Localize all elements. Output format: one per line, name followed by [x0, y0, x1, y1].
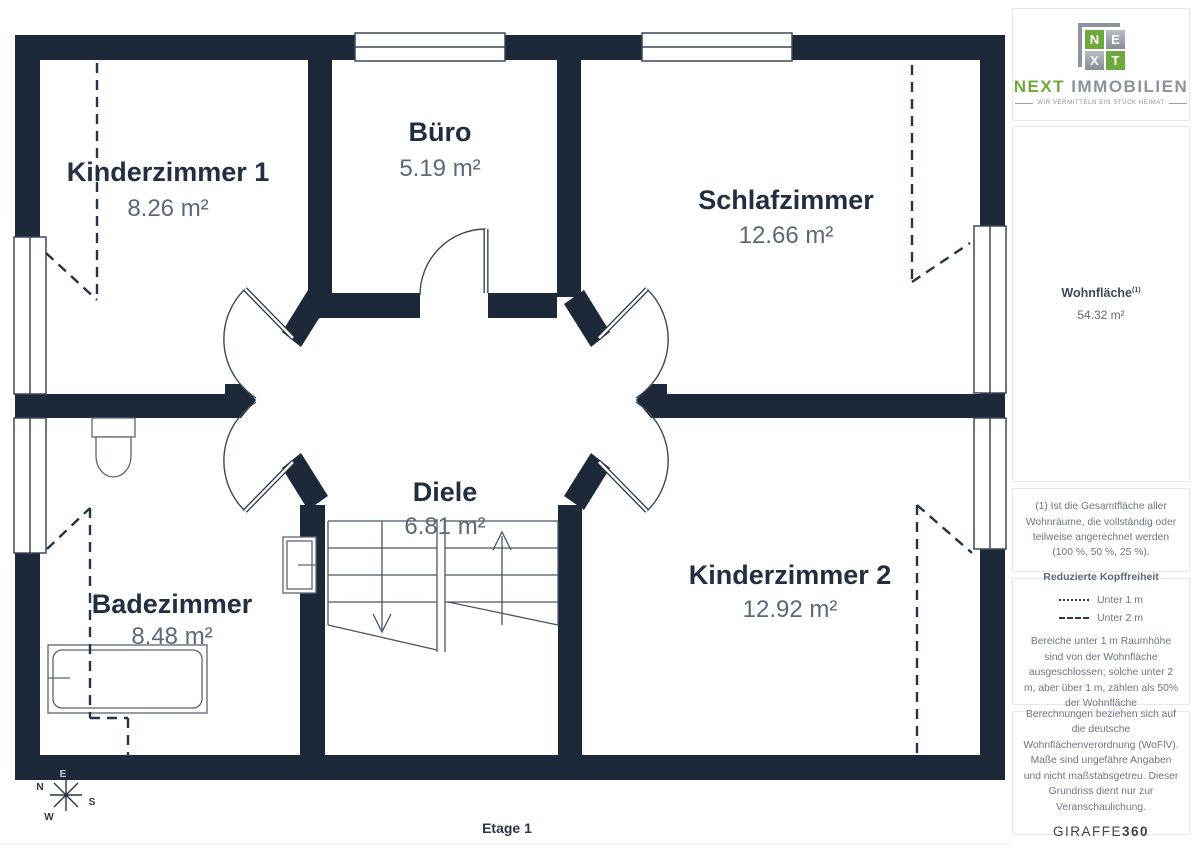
door-jamb-west — [225, 384, 256, 418]
room-area-buero: 5.19 m² — [399, 155, 480, 182]
wall-diele-kz2 — [558, 505, 582, 755]
legend-label-under-1m: Unter 1 m — [1097, 594, 1143, 606]
logo-tile-n: N — [1085, 30, 1104, 49]
wall-stub-ne — [564, 290, 610, 347]
stair-winder-right — [448, 602, 558, 625]
room-area-kinderzimmer1: 8.26 m² — [127, 195, 208, 222]
disclaimer-text: Berechnungen beziehen sich auf die deuts… — [1023, 707, 1179, 815]
room-labels: Kinderzimmer 1 8.26 m² Büro 5.19 m² Schl… — [67, 117, 892, 650]
logo-tiles: N E X T — [1085, 30, 1125, 70]
logo-tile-x: X — [1085, 51, 1104, 70]
legend-row-under-2m: Unter 2 m — [1059, 612, 1143, 624]
legend-label-under-2m: Unter 2 m — [1097, 612, 1143, 624]
toilet-cistern — [92, 418, 135, 437]
door-arc-schlafzimmer — [636, 289, 668, 398]
wall-kz1-buero — [308, 35, 332, 297]
wall-schlaf-kz2 — [667, 394, 980, 418]
room-area-schlafzimmer: 12.66 m² — [739, 222, 834, 249]
wall-stub-sw — [282, 453, 328, 510]
room-name-kinderzimmer1: Kinderzimmer 1 — [67, 157, 270, 187]
door-jamb-east — [636, 384, 667, 418]
room-name-schlafzimmer: Schlafzimmer — [698, 185, 874, 215]
compass-west-label: W — [44, 812, 54, 823]
room-name-buero: Büro — [409, 117, 472, 147]
disclaimer-card: Berechnungen beziehen sich auf die deuts… — [1012, 711, 1190, 835]
compass-east-label: E — [60, 769, 67, 780]
headroom-badezimmer — [47, 508, 128, 755]
giraffe-suffix: 360 — [1122, 824, 1149, 839]
headroom-kinderzimmer2 — [917, 505, 972, 753]
wall-bottom — [15, 755, 1005, 780]
room-area-badezimmer: 8.48 m² — [131, 623, 212, 650]
door-arc-buero — [420, 229, 486, 295]
logo-card: N E X T NEXT IMMOBILIEN WIR VERMITTELN E… — [1012, 8, 1190, 121]
wall-stub-se — [564, 453, 610, 510]
toilet-bowl — [96, 437, 131, 477]
wall-buero-bottom-right — [488, 293, 557, 318]
wall-kz1-bad — [15, 394, 225, 418]
headroom-title: Reduzierte Kopffreiheit — [1043, 571, 1159, 583]
living-area-footnote-marker: (1) — [1132, 287, 1141, 294]
wall-top — [15, 35, 1005, 60]
room-area-kinderzimmer2: 12.92 m² — [743, 596, 838, 623]
footnote-text: (1) Ist die Gesamtfläche aller Wohnräume… — [1023, 499, 1179, 561]
living-area-card: Wohnfläche(1) 54.32 m² — [1012, 126, 1190, 482]
headroom-note: Bereiche unter 1 m Raumhöhe sind von der… — [1023, 634, 1179, 711]
headroom-schlafzimmer — [912, 65, 970, 282]
logo-tile-e: E — [1106, 30, 1125, 49]
room-area-diele: 6.81 m² — [404, 513, 485, 540]
door-arc-kinderzimmer1 — [224, 289, 256, 398]
door-arc-kinderzimmer2 — [636, 402, 668, 511]
footnote-card: (1) Ist die Gesamtfläche aller Wohnräume… — [1012, 488, 1190, 572]
wall-right — [980, 35, 1005, 780]
room-name-diele: Diele — [413, 477, 478, 507]
giraffe-name: GIRAFFE — [1053, 824, 1122, 839]
floor-plan: Kinderzimmer 1 8.26 m² Büro 5.19 m² Schl… — [0, 0, 1010, 849]
next-logo-icon: N E X T — [1076, 23, 1126, 71]
giraffe360-wordmark: GIRAFFE360 — [1053, 824, 1149, 839]
level-label: Etage 1 — [482, 820, 532, 836]
wall-buero-schlafzimmer — [557, 35, 581, 297]
legend-row-under-1m: Unter 1 m — [1059, 594, 1143, 606]
room-name-kinderzimmer2: Kinderzimmer 2 — [689, 560, 892, 590]
compass-south-label: S — [89, 797, 96, 808]
living-area-label: Wohnfläche — [1061, 286, 1132, 300]
compass-north-label: N — [36, 782, 43, 793]
living-area-value: 54.32 m² — [1077, 308, 1124, 322]
door-arc-badezimmer — [224, 402, 256, 511]
logo-tagline-text: WIR VERMITTELN EIN STÜCK HEIMAT — [1037, 100, 1165, 106]
fixtures — [48, 418, 316, 713]
living-area-title: Wohnfläche(1) — [1061, 286, 1140, 300]
floor-plan-page: Kinderzimmer 1 8.26 m² Büro 5.19 m² Schl… — [0, 0, 1200, 849]
logo-brand-next: NEXT — [1014, 77, 1065, 96]
dashed-line-sample — [1059, 617, 1089, 619]
sidebar: N E X T NEXT IMMOBILIEN WIR VERMITTELN E… — [1012, 0, 1190, 849]
logo-tagline: WIR VERMITTELN EIN STÜCK HEIMAT — [1015, 100, 1187, 106]
logo-tile-t: T — [1106, 51, 1125, 70]
dotted-line-sample — [1059, 599, 1089, 601]
room-name-badezimmer: Badezimmer — [92, 589, 253, 619]
logo-wordmark: NEXT IMMOBILIEN — [1014, 77, 1189, 97]
logo-brand-immobilien: IMMOBILIEN — [1071, 77, 1188, 96]
headroom-card: Reduzierte Kopffreiheit Unter 1 m Unter … — [1012, 578, 1190, 705]
